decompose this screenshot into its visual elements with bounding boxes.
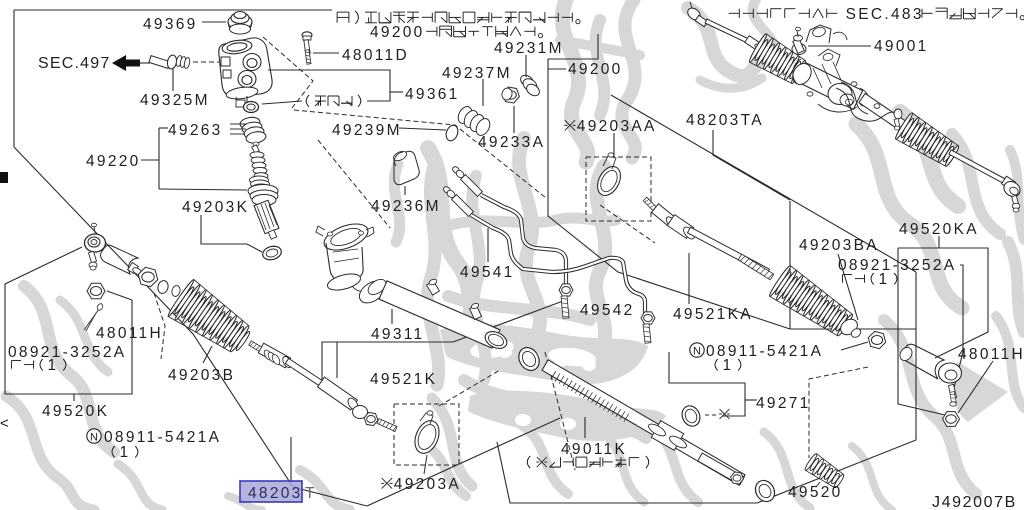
svg-text:48011H: 48011H xyxy=(958,346,1024,363)
svg-text:49521KA: 49521KA xyxy=(673,306,753,323)
svg-text:49520: 49520 xyxy=(788,484,843,501)
svg-text:49237M: 49237M xyxy=(442,65,512,82)
svg-text:49203A: 49203A xyxy=(394,476,461,493)
svg-text:T: T xyxy=(305,485,317,502)
svg-text:49203K: 49203K xyxy=(182,199,249,216)
svg-text:49520KA: 49520KA xyxy=(899,221,979,238)
svg-text:49011K: 49011K xyxy=(561,441,627,458)
svg-text:49203BA: 49203BA xyxy=(799,237,879,254)
svg-text:1: 1 xyxy=(48,357,59,374)
svg-text:49200: 49200 xyxy=(568,61,623,78)
svg-text:49203AA: 49203AA xyxy=(577,118,657,135)
svg-text:SEC.497: SEC.497 xyxy=(38,55,110,72)
svg-text:N: N xyxy=(90,432,98,444)
svg-text:49231M: 49231M xyxy=(494,40,564,57)
svg-text:49200: 49200 xyxy=(370,24,425,41)
svg-text:49203B: 49203B xyxy=(168,367,235,384)
svg-text:49541: 49541 xyxy=(460,264,515,281)
svg-text:J492007B: J492007B xyxy=(932,494,1017,510)
svg-text:08921-3252A: 08921-3252A xyxy=(8,344,126,361)
svg-text:49263: 49263 xyxy=(168,122,223,139)
svg-text:<: < xyxy=(0,415,9,432)
svg-text:48203: 48203 xyxy=(248,485,303,502)
svg-text:49361: 49361 xyxy=(405,86,460,103)
svg-text:49233A: 49233A xyxy=(478,134,545,151)
svg-text:49325M: 49325M xyxy=(140,92,210,109)
svg-text:N: N xyxy=(693,346,701,358)
svg-text:49236M: 49236M xyxy=(371,198,441,215)
svg-text:48011D: 48011D xyxy=(342,47,409,64)
svg-text:49311: 49311 xyxy=(371,326,424,343)
svg-text:49520K: 49520K xyxy=(42,403,109,420)
svg-text:48203TA: 48203TA xyxy=(686,112,764,129)
svg-text:1: 1 xyxy=(120,444,131,461)
svg-text:1: 1 xyxy=(879,271,890,288)
svg-text:49521K: 49521K xyxy=(370,371,437,388)
svg-text:49001: 49001 xyxy=(874,38,929,55)
svg-text:49369: 49369 xyxy=(143,16,198,33)
svg-text:1: 1 xyxy=(723,357,734,374)
svg-text:49271: 49271 xyxy=(756,395,811,412)
svg-text:49239M: 49239M xyxy=(332,122,402,139)
svg-text:48011H: 48011H xyxy=(96,325,163,342)
svg-text:49220: 49220 xyxy=(86,153,141,170)
svg-text:49542: 49542 xyxy=(580,302,635,319)
svg-text:08921-3252A: 08921-3252A xyxy=(838,257,956,274)
svg-text:SEC.483: SEC.483 xyxy=(839,6,924,23)
